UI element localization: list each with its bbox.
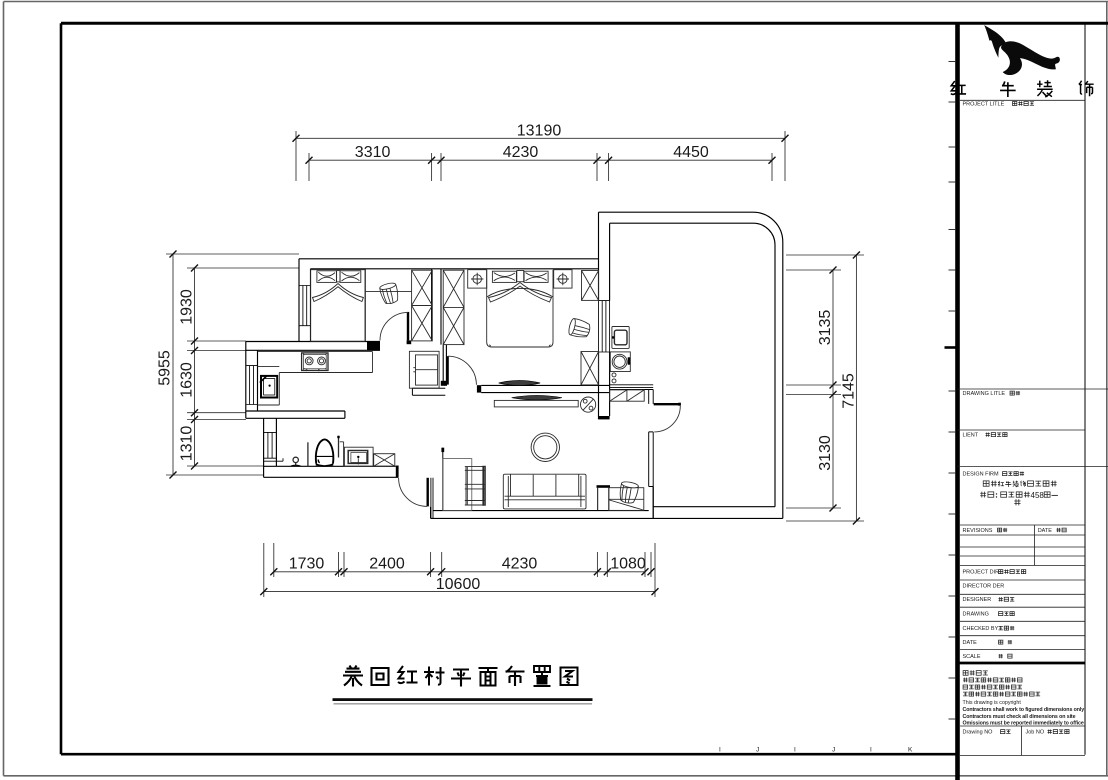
svg-text:I: I [719, 747, 721, 754]
svg-text:DATE: DATE [963, 640, 978, 646]
svg-text:CHECKED BY: CHECKED BY [963, 626, 999, 632]
svg-text:4230: 4230 [503, 144, 539, 161]
svg-text:1630: 1630 [179, 362, 196, 398]
svg-text:PROJECT LITLE: PROJECT LITLE [963, 101, 1005, 107]
svg-text:2400: 2400 [369, 556, 405, 573]
svg-text:1310: 1310 [179, 426, 196, 462]
svg-text:458: 458 [1031, 491, 1045, 500]
svg-text:SCALE: SCALE [963, 654, 981, 660]
svg-text:3130: 3130 [817, 435, 834, 471]
svg-text:J: J [756, 747, 759, 754]
svg-text:Job NO: Job NO [1026, 729, 1045, 735]
svg-text:This drawing is copyright: This drawing is copyright [963, 700, 1022, 706]
svg-text:3135: 3135 [817, 310, 834, 346]
svg-text:Contractors must check all dim: Contractors must check all dimensions on… [963, 714, 1076, 720]
svg-text:1730: 1730 [289, 556, 325, 573]
svg-text:DRAWING LITLE: DRAWING LITLE [963, 391, 1006, 397]
svg-text:13190: 13190 [517, 123, 562, 140]
svg-text:Contractors shall work to figu: Contractors shall work to figured dimens… [963, 707, 1085, 713]
svg-text:DIRECTOR DER: DIRECTOR DER [963, 583, 1005, 589]
svg-text:3310: 3310 [355, 144, 391, 161]
svg-text:K: K [908, 747, 913, 754]
svg-text:REVISIONS: REVISIONS [963, 528, 993, 534]
svg-text:DESIGNER: DESIGNER [963, 597, 992, 603]
svg-text:10600: 10600 [436, 576, 481, 593]
svg-text:DRAWING: DRAWING [963, 611, 989, 617]
svg-text:1080: 1080 [610, 556, 646, 573]
svg-text:7145: 7145 [840, 373, 857, 409]
svg-text:J: J [832, 747, 835, 754]
svg-text:5955: 5955 [157, 350, 174, 386]
svg-text:LIENT: LIENT [963, 432, 979, 438]
svg-text:DESIGN FIRM: DESIGN FIRM [963, 471, 999, 477]
svg-text:I: I [794, 747, 796, 754]
svg-text:Omissions must be reported imm: Omissions must be reported immediately t… [963, 720, 1084, 726]
svg-text:4450: 4450 [673, 144, 709, 161]
svg-text:4230: 4230 [502, 556, 538, 573]
svg-text:PROJECT DIR.: PROJECT DIR. [963, 569, 1002, 575]
svg-text:I: I [870, 747, 872, 754]
svg-text:Drawing NO: Drawing NO [963, 729, 994, 735]
svg-text:1930: 1930 [179, 289, 196, 325]
svg-text:DATE: DATE [1038, 528, 1053, 534]
